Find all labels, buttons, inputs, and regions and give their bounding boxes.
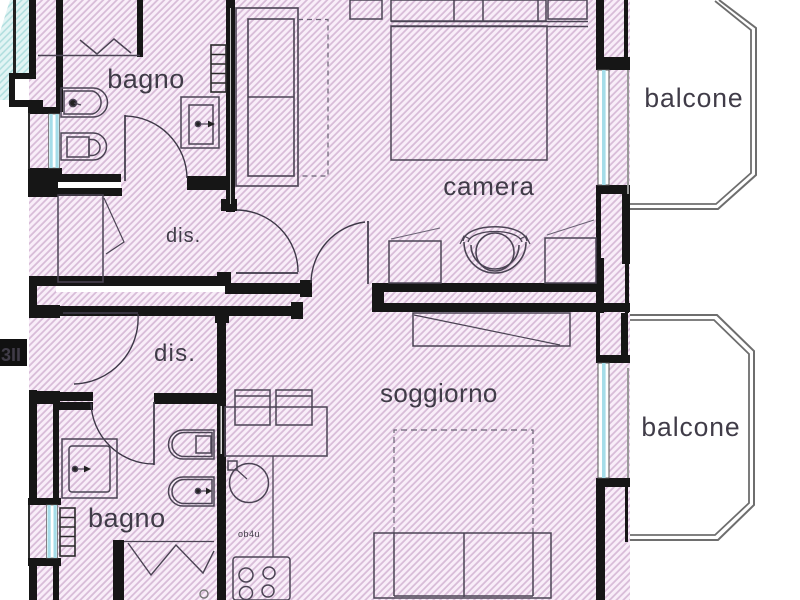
svg-text:dis.: dis. [166, 225, 201, 247]
svg-text:3II: 3II [1, 345, 21, 365]
svg-text:dis.: dis. [154, 340, 196, 367]
svg-text:camera: camera [443, 171, 535, 201]
svg-text:soggiorno: soggiorno [380, 378, 498, 408]
svg-text:balcone: balcone [641, 412, 740, 442]
svg-text:balcone: balcone [644, 83, 743, 113]
svg-text:ob4u: ob4u [238, 529, 260, 539]
svg-text:bagno: bagno [107, 64, 185, 94]
svg-text:bagno: bagno [88, 503, 166, 533]
